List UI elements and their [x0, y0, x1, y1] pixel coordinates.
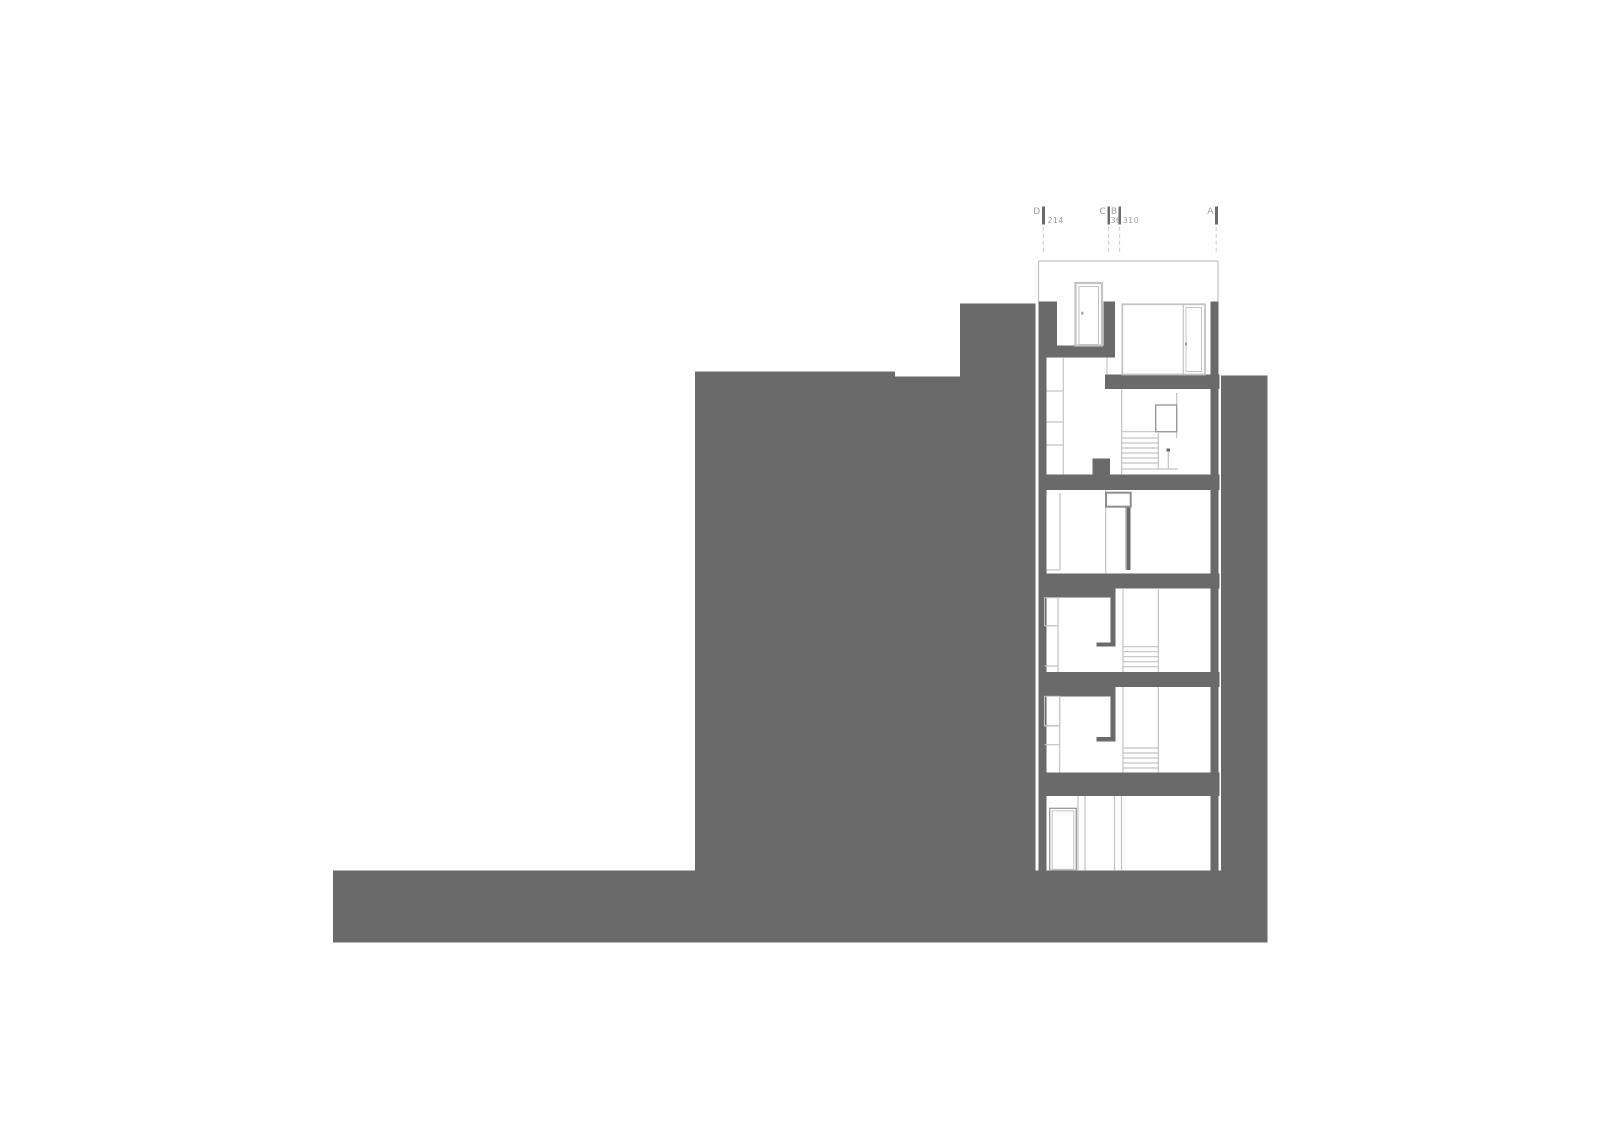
newel-post-level5 — [1167, 448, 1170, 451]
grid-tick-B — [1118, 207, 1121, 225]
door-jamb-level4 — [1127, 507, 1131, 570]
hill-mass-column — [960, 303, 1035, 870]
attic-wall-left-jamb — [1039, 301, 1058, 345]
neighbor-mass-right — [1221, 376, 1267, 871]
hill-mass-left — [695, 372, 895, 871]
door-handle-mark-attic — [1081, 312, 1083, 315]
building-section-drawing: D214C36B310A — [0, 0, 1600, 1131]
slab-level3 — [1039, 672, 1220, 687]
slab-level2-thick — [1039, 772, 1220, 796]
hung-wall-level2 — [1111, 683, 1116, 741]
grid-letter-C: C — [1099, 207, 1106, 217]
grid-letter-B: B — [1111, 207, 1117, 217]
slab-roof-left — [1039, 345, 1116, 357]
grid-letter-D: D — [1033, 207, 1040, 217]
hill-mass-mid — [895, 377, 960, 871]
grid-tick-A — [1215, 207, 1218, 225]
grid-letter-A: A — [1207, 207, 1214, 217]
door-handle-mark-glass — [1185, 343, 1187, 346]
slab-level4-left-ext — [1039, 588, 1111, 597]
slab-level3-left-ext — [1039, 687, 1111, 696]
hung-wall-level3 — [1111, 585, 1116, 646]
slab-level4 — [1039, 573, 1220, 588]
hung-wall-foot-level2 — [1096, 737, 1115, 741]
parapet-stub-level5 — [1092, 458, 1110, 474]
ground-base-strip — [333, 871, 1267, 943]
grid-dim-214: 214 — [1048, 216, 1064, 225]
slab-roof-right — [1105, 375, 1219, 390]
architectural-section-page: D214C36B310A — [0, 0, 1600, 1131]
grid-dim-310: 310 — [1123, 216, 1139, 225]
hung-wall-foot-level3 — [1096, 642, 1115, 646]
slab-level5 — [1039, 474, 1220, 490]
grid-tick-D — [1042, 207, 1045, 225]
